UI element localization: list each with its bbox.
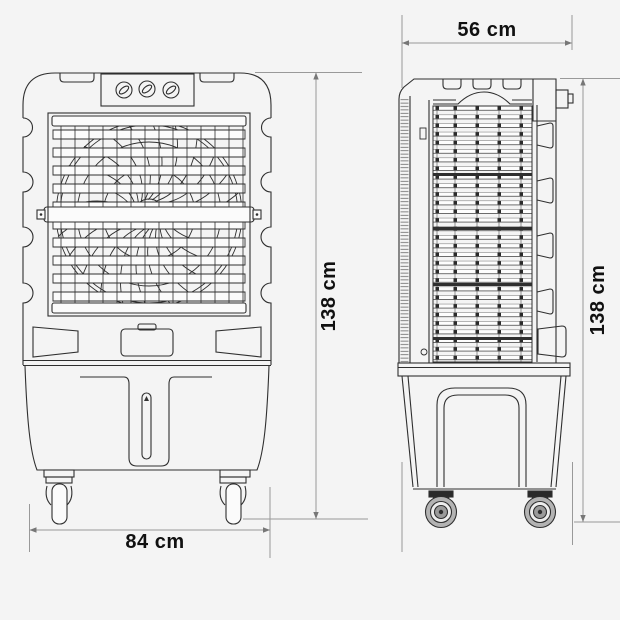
drain-box [538, 326, 566, 357]
front-caster-right [220, 477, 246, 524]
grille-crossbar [44, 207, 254, 222]
front-view [23, 73, 271, 524]
handle-pocket [537, 233, 553, 258]
side-view [398, 79, 573, 528]
front-caster-left [46, 477, 72, 524]
top-grip-left [60, 73, 94, 82]
handle-pocket [537, 178, 553, 203]
vent-left [33, 327, 78, 357]
dim-label-front-height: 138 cm [317, 236, 341, 356]
handle-pocket [537, 123, 553, 148]
water-level-gauge [142, 393, 151, 459]
side-grille [433, 106, 532, 362]
dim-label-front-width: 84 cm [95, 530, 215, 554]
side-caster-left [426, 491, 457, 528]
control-panel [101, 74, 194, 106]
latch-door [121, 329, 173, 356]
control-knobs [116, 81, 179, 98]
diagram-canvas [0, 0, 620, 620]
dim-label-side-width: 56 cm [427, 18, 547, 42]
top-grip-right [200, 73, 234, 82]
water-tank [25, 366, 269, 470]
side-caster-right [525, 491, 556, 528]
vent-right [216, 327, 261, 357]
dimension-diagram: 56 cm 138 cm 138 cm 84 cm [0, 0, 620, 620]
dim-label-side-height: 138 cm [586, 240, 610, 360]
handle-pocket [537, 289, 553, 314]
